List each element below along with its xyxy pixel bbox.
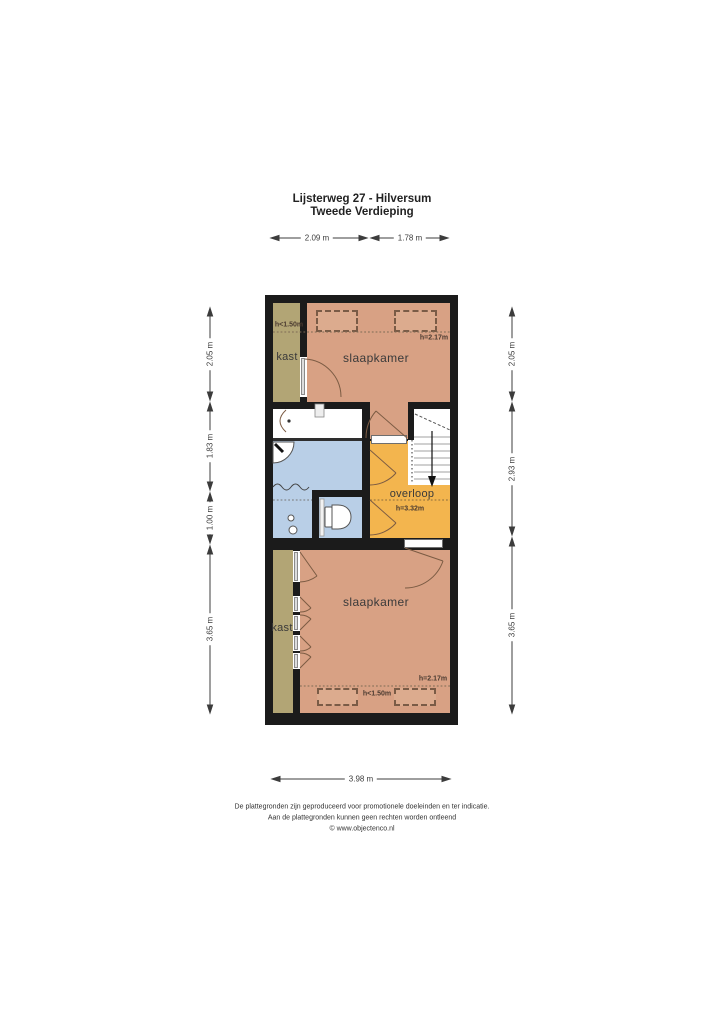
height-label-bedroom-bottom-low: h<1.50m [363, 691, 391, 698]
roof-window-bottom-left [317, 688, 358, 706]
room-label-closet-bottom: kast [271, 622, 292, 634]
floorplan-page: Lijsterweg 27 - Hilversum Tweede Verdiep… [0, 0, 724, 1024]
wall-stairwell-top [408, 402, 450, 409]
dim-left-4: 3.65 m [206, 613, 215, 645]
plan-title: Lijsterweg 27 - Hilversum [293, 193, 432, 205]
threshold-landing-bedroom2 [404, 539, 443, 548]
dim-right-1: 2.05 m [508, 338, 517, 370]
dim-top-2: 1.78 m [394, 234, 426, 243]
dim-right-2: 2.93 m [508, 453, 517, 485]
stairwell [414, 409, 450, 485]
footer-disclaimer-1: De plattegronden zijn geproduceerd voor … [235, 804, 490, 811]
room-label-bedroom-top: slaapkamer [343, 351, 409, 365]
footer-disclaimer-2: Aan de plattegronden kunnen geen rechten… [268, 815, 456, 822]
roof-window-top-left [316, 310, 358, 332]
wall-mid-horizontal [273, 402, 370, 409]
dim-top-1: 2.09 m [301, 234, 333, 243]
wall-bath-landing-mid [362, 485, 370, 500]
room-label-landing: overloop [390, 488, 435, 500]
room-label-closet-top: kast [276, 351, 297, 363]
door-leaf-closet2-3 [294, 616, 298, 630]
wall-closet-top [300, 303, 307, 358]
threshold-bedroom-landing [371, 435, 407, 444]
footer-copyright: © www.objectenco.nl [329, 826, 394, 833]
wall-nook-bottom [273, 438, 362, 441]
dim-right-3: 3.65 m [508, 609, 517, 641]
wall-toilet-left [312, 497, 319, 538]
wall-toilet-top [312, 490, 362, 497]
storage-nook-room [273, 409, 362, 438]
plan-subtitle: Tweede Verdieping [310, 206, 413, 218]
dim-left-1: 2.05 m [206, 338, 215, 370]
door-leaf-closet-top [301, 358, 305, 395]
door-leaf-closet2-4 [294, 636, 298, 650]
dim-bottom: 3.98 m [345, 775, 377, 784]
height-label-bedroom-bottom-high: h=2.17m [419, 676, 447, 683]
height-label-landing: h=3.32m [396, 506, 424, 513]
door-leaf-closet2-1 [294, 552, 298, 581]
stairwell-open-edge [408, 440, 414, 485]
dim-left-3: 1.00 m [206, 502, 215, 534]
wall-bath-landing-upper [362, 409, 370, 450]
door-leaf-closet2-5 [294, 654, 298, 668]
roof-window-bottom-right [394, 688, 436, 706]
height-label-bedroom-top-high: h=2.17m [420, 335, 448, 342]
bedroom-top-doorway-bay [370, 402, 408, 439]
door-leaf-closet2-2 [294, 597, 298, 611]
height-label-bedroom-top-low: h<1.50m [275, 322, 303, 329]
wall-stairwell-left [408, 402, 414, 440]
room-label-bedroom-bottom: slaapkamer [343, 595, 409, 609]
roof-window-top-right [394, 310, 437, 332]
dim-left-2: 1.83 m [206, 430, 215, 462]
